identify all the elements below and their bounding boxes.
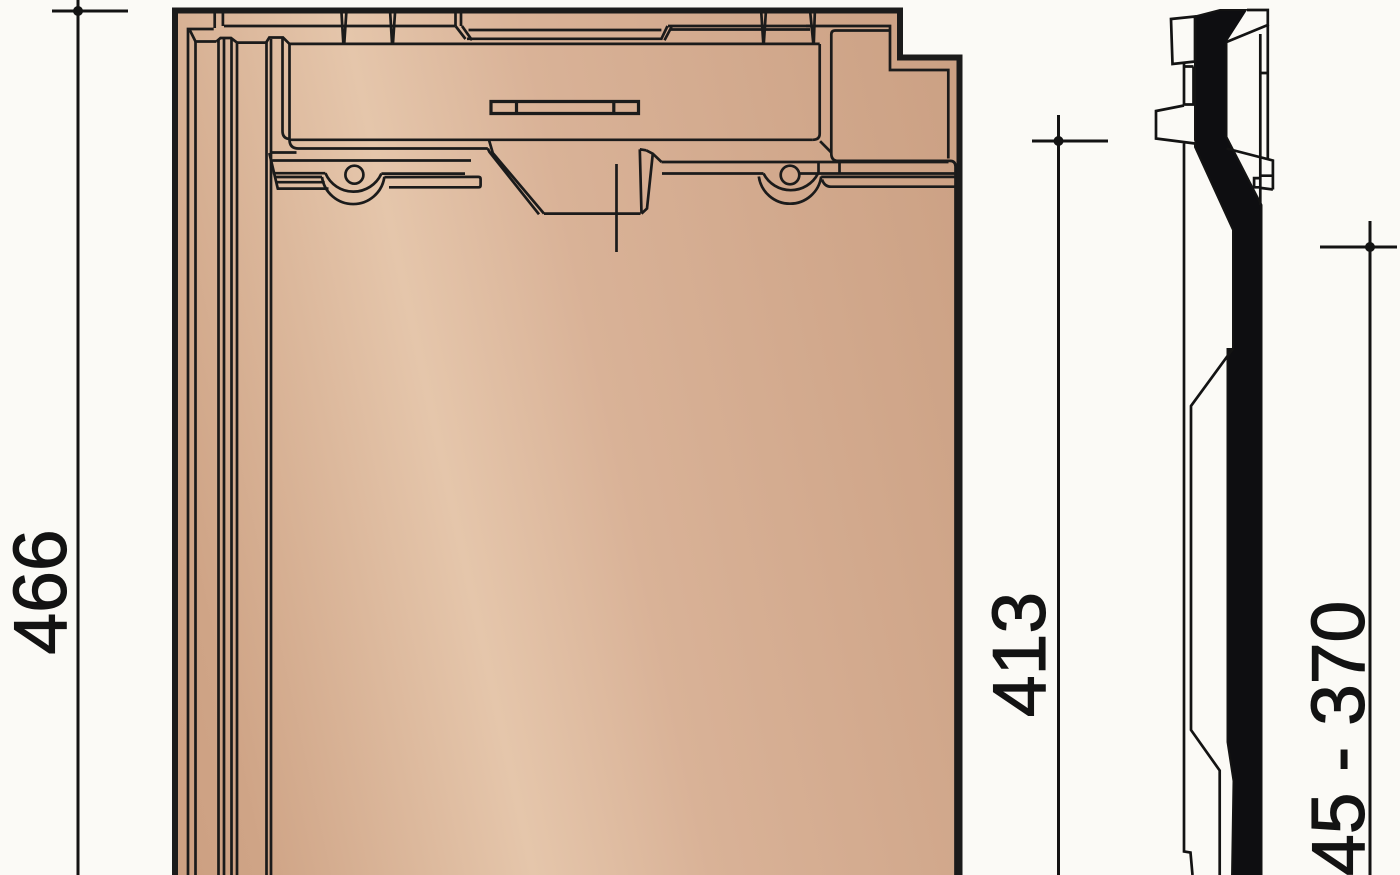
svg-text:413: 413 — [977, 592, 1061, 717]
svg-text:466: 466 — [0, 529, 82, 654]
svg-text:45 - 370: 45 - 370 — [1296, 601, 1380, 875]
